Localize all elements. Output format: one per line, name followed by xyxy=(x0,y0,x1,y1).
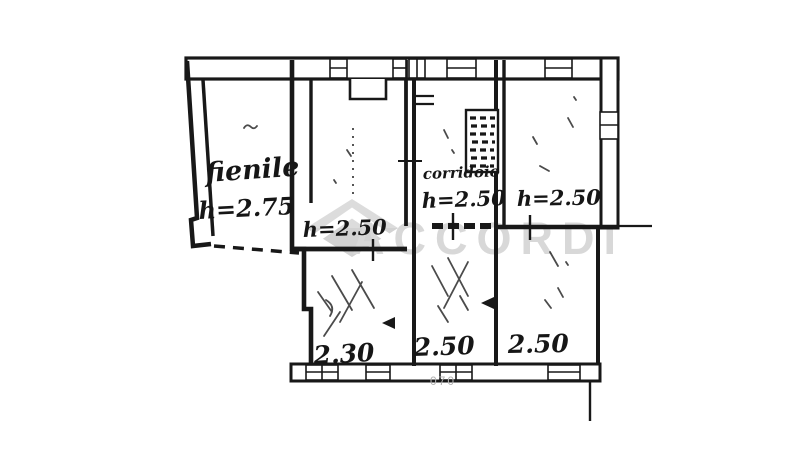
label-width-250-mid: 2.50 xyxy=(412,331,475,362)
window xyxy=(409,59,425,78)
labels: fienile h=2.75 h=2.50 corridoio h=2.50 h… xyxy=(198,151,602,388)
scribble-room-top-middle xyxy=(334,150,351,183)
label-corridor: corridoio xyxy=(423,162,500,183)
window xyxy=(545,59,572,78)
wall-niche xyxy=(350,79,386,99)
label-rightroom-height: h=2.50 xyxy=(517,185,602,211)
window xyxy=(393,59,406,78)
window xyxy=(366,365,390,380)
label-width-250-right: 2.50 xyxy=(507,329,570,359)
label-faint-dimension: 070 xyxy=(430,374,456,388)
label-fienile: fienile xyxy=(202,151,300,189)
scribble-room-top-right xyxy=(533,97,576,171)
door-arrow-icon xyxy=(481,297,494,309)
door-arrows xyxy=(382,297,494,329)
scribble-room-bottom-left xyxy=(318,270,374,336)
label-width-230: 2.30 xyxy=(312,338,376,370)
scribble-room-bottom-middle xyxy=(432,258,468,322)
corridor-wall-ticks xyxy=(416,96,434,104)
window xyxy=(447,59,476,78)
window xyxy=(548,365,580,380)
right-window xyxy=(600,112,618,139)
label-midroom-height: h=2.50 xyxy=(302,214,387,242)
label-corridor-height: h=2.50 xyxy=(421,185,506,213)
label-fienile-height: h=2.75 xyxy=(198,191,295,225)
scribble-fienile xyxy=(244,125,257,128)
door-arrow-icon xyxy=(382,317,395,329)
wall-left-vertical xyxy=(292,60,311,366)
floor-plan-svg: ACCORDI xyxy=(0,0,800,454)
scanned-floorplan-page: ACCORDI xyxy=(0,0,800,454)
watermark-text: ACCORDI xyxy=(352,213,625,264)
window xyxy=(330,59,347,78)
right-wall-band xyxy=(601,58,618,228)
fienile-dashed-open-side xyxy=(214,246,299,253)
scribble-corridor xyxy=(444,130,454,153)
